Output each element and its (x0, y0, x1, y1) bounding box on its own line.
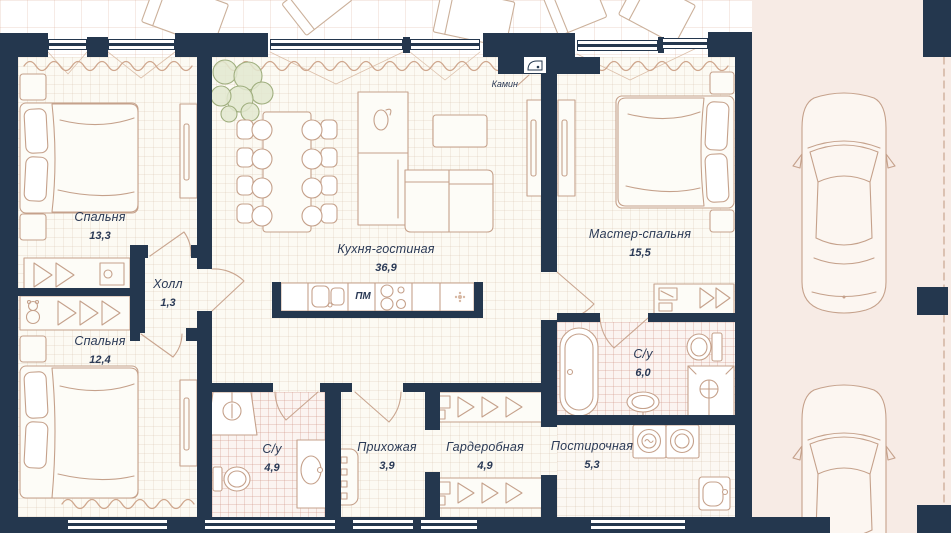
room-name: Прихожая (322, 441, 452, 454)
room-area: 15,5 (575, 248, 705, 259)
room-area: 36,9 (321, 263, 451, 274)
room-label-entry-hall: Прихожая 3,9 (322, 441, 452, 472)
room-name: С/у (207, 443, 337, 456)
bedroom-1-furniture (20, 74, 197, 290)
room-name: Спальня (35, 335, 165, 348)
car-top-view (793, 385, 895, 533)
room-label-bathroom-2: С/у 4,9 (207, 443, 337, 474)
room-label-bedroom-2: Спальня 12,4 (35, 335, 165, 366)
coffee-table (433, 115, 487, 147)
room-label-bedroom-1: Спальня 13,3 (35, 211, 165, 242)
fireplace-label: Камин (472, 79, 518, 89)
dishwasher-label: ПМ (349, 291, 377, 302)
floor-plan: Спальня 13,3 Холл 1,3 Спальня 12,4 Кухня… (0, 0, 951, 533)
entrance-door-glass (352, 519, 414, 530)
parking-pillar (917, 505, 951, 533)
room-area: 6,0 (578, 368, 708, 379)
room-name: Спальня (35, 211, 165, 224)
room-area: 1,3 (103, 298, 233, 309)
counter-back (272, 311, 483, 318)
room-label-hall: Холл 1,3 (103, 278, 233, 309)
bed (20, 103, 138, 213)
room-name: Холл (103, 278, 233, 291)
tv-dresser (180, 104, 197, 198)
sofa (405, 170, 493, 232)
dining-set (237, 112, 337, 232)
nightstand (710, 72, 734, 94)
master-bedroom-furniture (558, 72, 734, 314)
room-area: 4,9 (207, 463, 337, 474)
parked-cars (793, 93, 895, 533)
shower (207, 392, 257, 435)
fireplace-wall (498, 57, 600, 74)
parking-pillar (923, 0, 951, 57)
nightstand (710, 210, 734, 232)
room-name: С/у (578, 348, 708, 361)
room-area: 12,4 (35, 355, 165, 366)
fireplace-icon (524, 57, 546, 73)
room-label-bathroom-master: С/у 6,0 (578, 348, 708, 379)
car-top-view (793, 93, 895, 313)
laundry-sink (699, 477, 730, 510)
room-area: 3,9 (322, 461, 452, 472)
bed (616, 96, 734, 208)
bed (20, 366, 138, 498)
kitchen-tall-unit (358, 92, 408, 225)
tv-dresser (180, 380, 197, 466)
closet-strip (428, 478, 543, 508)
room-label-kitchen-living: Кухня-гостиная 36,9 (321, 243, 451, 274)
kitchen-counter (281, 283, 474, 311)
wardrobe-strip (654, 284, 734, 314)
dresser (558, 100, 575, 196)
room-name: Кухня-гостиная (321, 243, 451, 256)
room-name: Мастер-спальня (575, 228, 705, 241)
bedroom-2-furniture (20, 296, 197, 498)
parking-pillar (917, 287, 948, 315)
nightstand (20, 74, 46, 100)
room-label-master-bedroom: Мастер-спальня 15,5 (575, 228, 705, 259)
room-area: 13,3 (35, 231, 165, 242)
closet-strip (428, 392, 543, 422)
dryer (666, 425, 699, 458)
